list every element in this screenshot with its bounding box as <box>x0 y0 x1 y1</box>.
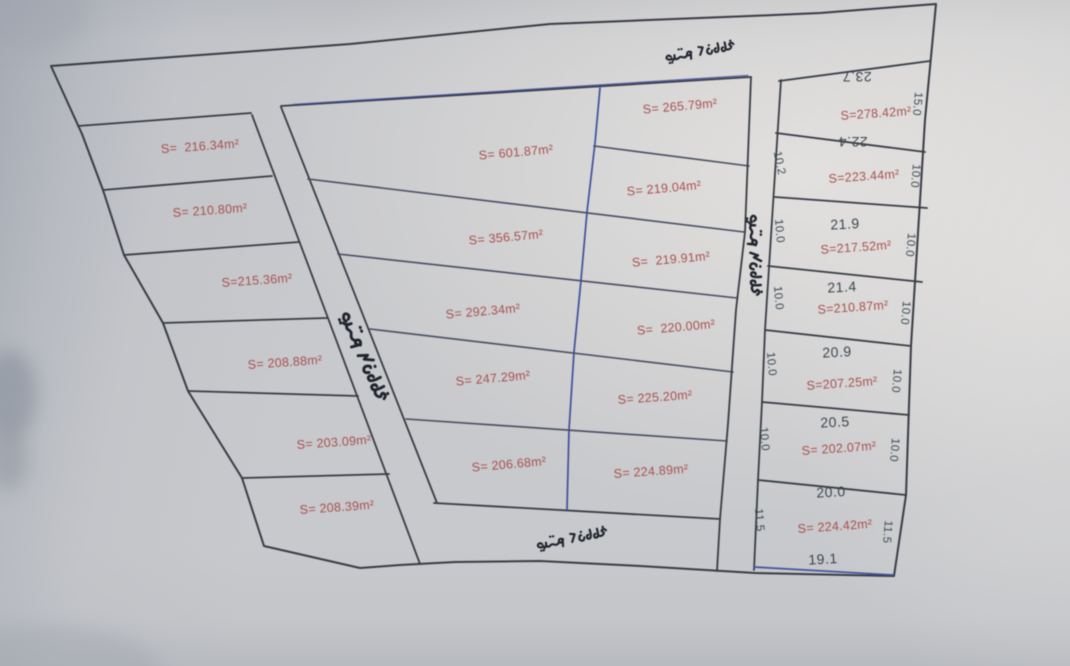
svg-text:S=215.36m²: S=215.36m² <box>221 271 293 290</box>
svg-text:20.5: 20.5 <box>820 413 850 431</box>
svg-text:S= 219.91m²: S= 219.91m² <box>631 249 710 270</box>
svg-text:10.0: 10.0 <box>889 368 903 393</box>
svg-text:S=217.52m²: S=217.52m² <box>820 238 892 257</box>
svg-text:21.9: 21.9 <box>830 215 860 233</box>
svg-text:11.5: 11.5 <box>752 508 766 532</box>
svg-text:S= 208.88m²: S= 208.88m² <box>247 353 322 372</box>
svg-text:S=207.25m²: S=207.25m² <box>806 374 878 393</box>
svg-text:S= 216.34m²: S= 216.34m² <box>160 137 239 156</box>
svg-text:S= 225.20m²: S= 225.20m² <box>617 388 692 407</box>
svg-text:10.0: 10.0 <box>898 300 912 325</box>
svg-text:10.0: 10.0 <box>908 163 922 188</box>
svg-text:10.0: 10.0 <box>903 232 917 257</box>
svg-text:S= 356.57m²: S= 356.57m² <box>468 227 544 247</box>
svg-text:10.0: 10.0 <box>887 437 901 462</box>
svg-text:S= 601.87m²: S= 601.87m² <box>478 142 554 162</box>
svg-text:15.0: 15.0 <box>910 91 924 116</box>
svg-text:S=278.42m²: S=278.42m² <box>840 104 912 123</box>
svg-text:S=223.44m²: S=223.44m² <box>828 167 900 186</box>
svg-text:S= 220.00m²: S= 220.00m² <box>636 317 715 338</box>
svg-text:S= 208.39m²: S= 208.39m² <box>299 498 374 517</box>
svg-text:20.0: 20.0 <box>816 483 846 501</box>
svg-text:S= 202.07m²: S= 202.07m² <box>801 439 876 458</box>
svg-text:S= 206.68m²: S= 206.68m² <box>471 454 547 474</box>
svg-text:S= 224.89m²: S= 224.89m² <box>613 462 688 481</box>
svg-text:S=210.87m²: S=210.87m² <box>817 298 889 317</box>
svg-text:21.4: 21.4 <box>827 278 857 296</box>
svg-text:19.1: 19.1 <box>808 550 838 568</box>
svg-text:11.5: 11.5 <box>880 520 894 544</box>
svg-text:S= 224.42m²: S= 224.42m² <box>797 517 872 536</box>
svg-text:10.0: 10.0 <box>771 286 785 311</box>
svg-text:S= 203.09m²: S= 203.09m² <box>296 433 371 452</box>
svg-text:23.7: 23.7 <box>842 69 871 85</box>
svg-text:S= 219.04m²: S= 219.04m² <box>626 178 702 198</box>
svg-text:S= 265.79m²: S= 265.79m² <box>642 96 718 116</box>
svg-text:10.0: 10.0 <box>757 427 771 452</box>
svg-text:10.0: 10.0 <box>772 219 786 244</box>
svg-text:22.4: 22.4 <box>838 134 867 150</box>
svg-text:10.2: 10.2 <box>771 150 788 176</box>
svg-text:S= 247.29m²: S= 247.29m² <box>455 368 531 388</box>
svg-text:20.9: 20.9 <box>822 343 852 361</box>
svg-text:S= 292.34m²: S= 292.34m² <box>445 301 521 321</box>
svg-text:10.0: 10.0 <box>764 352 778 377</box>
svg-text:S= 210.80m²: S= 210.80m² <box>172 201 247 220</box>
